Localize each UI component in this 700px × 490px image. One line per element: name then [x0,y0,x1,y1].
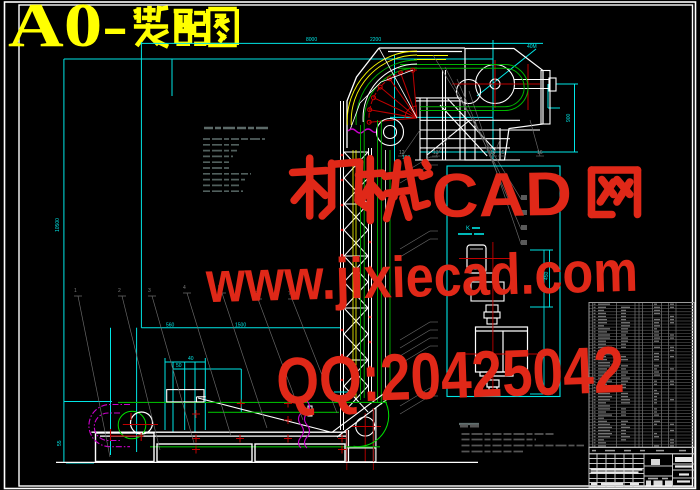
svg-text:8000: 8000 [306,37,317,43]
svg-text:A0-: A0- [8,0,128,60]
svg-text:10500: 10500 [55,218,61,232]
svg-text:1: 1 [74,288,77,294]
svg-text:CAD: CAD [431,160,572,231]
svg-text:16: 16 [537,150,543,156]
svg-text:www.jixiecad.com: www.jixiecad.com [204,239,638,315]
svg-text:900: 900 [566,113,572,122]
svg-text:13: 13 [433,150,439,156]
svg-text:40M: 40M [527,44,537,50]
svg-text:12: 12 [399,150,405,156]
svg-text:3: 3 [148,288,151,294]
svg-text:50: 50 [176,363,182,369]
svg-text:4: 4 [183,285,186,291]
svg-text:40: 40 [188,356,194,362]
svg-text:55: 55 [57,440,63,446]
svg-text:QQ:20425042: QQ:20425042 [275,332,625,418]
svg-text:2200: 2200 [370,37,381,43]
svg-text:1500: 1500 [235,323,246,329]
svg-text:2: 2 [118,288,121,294]
svg-text:560: 560 [166,323,175,329]
svg-text:15: 15 [499,150,505,156]
